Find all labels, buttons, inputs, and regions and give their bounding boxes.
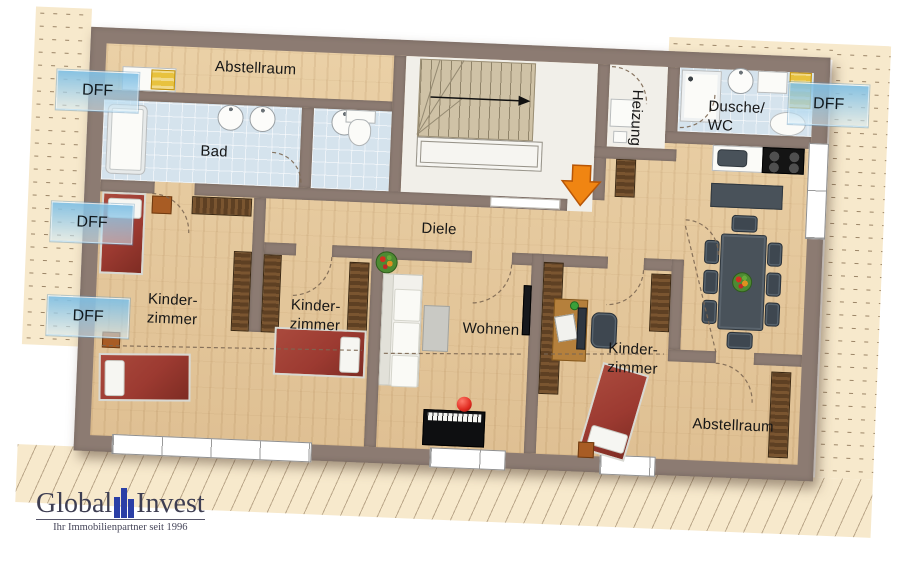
- sideboard: [710, 183, 783, 210]
- logo-bars-icon: [114, 488, 134, 518]
- bed: [98, 353, 190, 402]
- roof-window-dff-left-top: DFF: [56, 69, 140, 112]
- dining-chair: [726, 332, 753, 350]
- sofa-cushion: [390, 355, 418, 388]
- dining-chair: [703, 270, 719, 295]
- logo-bar: [128, 499, 134, 518]
- toilet-bowl: [347, 119, 371, 147]
- room-label-line: zimmer: [289, 315, 340, 334]
- logo-bar: [121, 488, 127, 518]
- room-label-line: Kinder-: [148, 290, 198, 309]
- piano-keys: [427, 412, 481, 422]
- room-label-line: Kinder-: [608, 340, 658, 359]
- window: [599, 454, 656, 476]
- monitor: [576, 307, 587, 349]
- roof-window-dff-right: DFF: [788, 82, 870, 127]
- bed-pillow: [104, 360, 124, 396]
- window: [805, 143, 829, 240]
- floorplan-drawing: Abstellraum Bad Diele Heizung Dusche/ WC…: [10, 0, 890, 518]
- logo-bar: [114, 497, 120, 518]
- logo-tagline: Ihr Immobilienpartner seit 1996: [36, 522, 205, 533]
- company-logo: Global Invest Ihr Immobilienpartner seit…: [36, 488, 205, 533]
- room-label-kinderzimmer-left: Kinder- zimmer: [129, 289, 217, 331]
- dining-chair: [701, 300, 717, 325]
- sofa-cushion: [392, 322, 420, 355]
- room-label-line: Dusche/: [708, 98, 765, 117]
- dining-chair: [764, 302, 780, 327]
- wardrobe: [768, 372, 792, 459]
- toilet: [344, 110, 373, 147]
- room-label-wohnen: Wohnen: [445, 318, 538, 341]
- room-label-heizung: Heizung: [622, 73, 648, 162]
- chimney-closet: [615, 159, 637, 198]
- bath-cabinet: [757, 71, 788, 94]
- dresser: [191, 196, 252, 216]
- stove-cooktop: [762, 147, 805, 175]
- stool: [578, 442, 595, 459]
- roof-window-dff-left-middle: DFF: [50, 201, 134, 244]
- piano: [422, 409, 485, 448]
- dining-chair: [767, 242, 783, 267]
- logo-word-global: Global: [36, 490, 112, 518]
- room-label-line: zimmer: [147, 309, 198, 328]
- room-label-line: Kinder-: [291, 296, 341, 315]
- room-label-dusche-wc: Dusche/ WC: [707, 97, 785, 138]
- floorplan-page: Abstellraum Bad Diele Heizung Dusche/ WC…: [0, 0, 920, 567]
- bed-pillow: [339, 336, 360, 373]
- wardrobe: [649, 273, 671, 332]
- staircase: [417, 59, 536, 142]
- nightstand: [151, 195, 172, 214]
- dining-chair: [704, 240, 720, 265]
- laptop: [554, 313, 578, 342]
- wall-segment: [754, 353, 802, 367]
- logo-brand-row: Global Invest: [36, 488, 205, 520]
- kitchen-sink: [717, 149, 748, 167]
- stair-landing-railing: [416, 137, 543, 172]
- bathtub: [105, 104, 148, 176]
- logo-word-invest: Invest: [136, 490, 204, 518]
- sofa: [378, 273, 423, 387]
- room-label-bad: Bad: [184, 141, 245, 162]
- wardrobe: [231, 251, 252, 332]
- room-label-kinderzimmer-middle: Kinder- zimmer: [272, 295, 360, 337]
- dining-chair: [731, 215, 758, 233]
- window: [429, 447, 506, 470]
- room-label-line: WC: [707, 117, 733, 135]
- room-label-kinderzimmer-right: Kinder- zimmer: [589, 338, 677, 380]
- dining-chair: [766, 272, 782, 297]
- room-label-diele: Diele: [403, 218, 476, 240]
- room-label-line: zimmer: [607, 359, 658, 378]
- roof-window-dff-left-bottom: DFF: [46, 295, 130, 338]
- sofa-cushion: [393, 289, 421, 322]
